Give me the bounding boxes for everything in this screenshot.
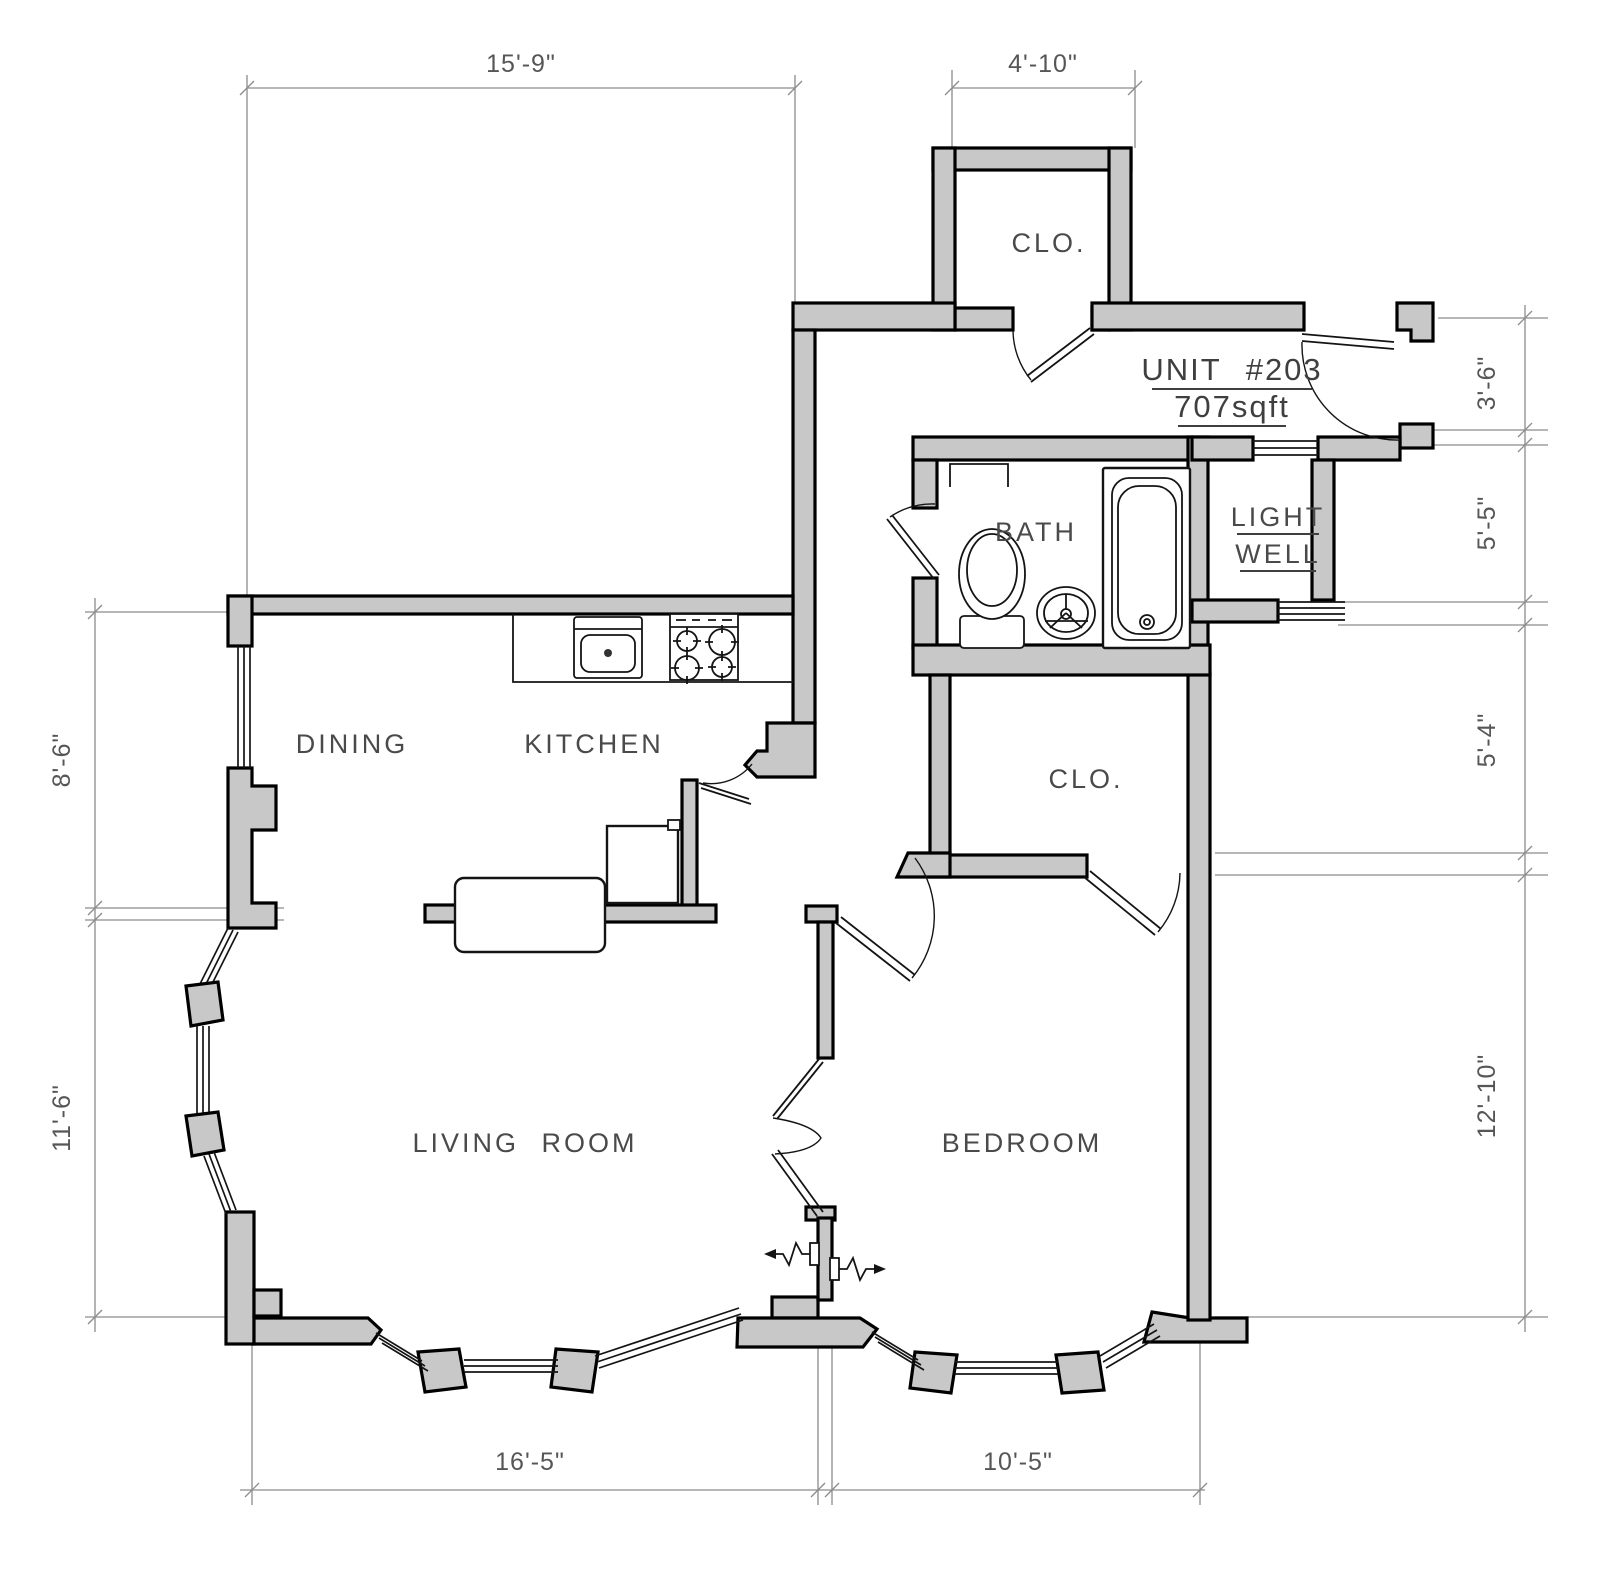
wall-bed-closet-south (930, 855, 1087, 877)
wall-north-left (793, 303, 955, 330)
dim-right-entry: 3'-6" (1473, 356, 1501, 411)
door-unit-entry (1302, 334, 1400, 440)
bay-pier-living-2 (551, 1349, 598, 1392)
wall-east (1188, 673, 1210, 1320)
label-light-well-2: WELL (1235, 539, 1321, 569)
label-living-room: LIVING ROOM (412, 1128, 637, 1158)
wall-hall-west-chunk (745, 723, 815, 777)
wall-northeast-corner (1397, 303, 1433, 341)
label-bedroom: BEDROOM (942, 1128, 1103, 1158)
dim-bottom-living: 16'-5" (495, 1448, 565, 1476)
wall-lightwell-north-a (1192, 437, 1253, 460)
wall-sw-corner-nub (254, 1290, 281, 1316)
bath-shelf (950, 464, 1008, 487)
dim-right-bedroom: 12'-10" (1473, 1054, 1501, 1139)
fixtures (455, 464, 1190, 952)
refrigerator (607, 820, 680, 903)
wall-south-center-step (772, 1297, 818, 1318)
label-kitchen: KITCHEN (524, 729, 664, 759)
dim-left-living: 11'-6" (48, 1084, 76, 1152)
door-bedroom-closet (1084, 871, 1180, 935)
window-lightwell-south (1278, 602, 1345, 620)
bay-pier-bedroom-2 (1056, 1352, 1104, 1393)
kitchen-stove (670, 614, 739, 684)
dim-right-closet: 5'-4" (1473, 713, 1501, 768)
wall-bed-closet-west (930, 675, 950, 855)
walls (226, 148, 1433, 1393)
wall-bath-north (913, 437, 1192, 460)
kitchen-sink (574, 617, 642, 678)
label-bedroom-closet: CLO. (1048, 764, 1123, 794)
bay-pier-bedroom-1 (910, 1352, 957, 1393)
door-entry-closet (1013, 328, 1094, 382)
window-bedroom-bay-center (955, 1362, 1058, 1374)
window-living-bay-center (464, 1360, 558, 1372)
bathtub (1103, 468, 1190, 648)
window-living-west-3 (204, 1152, 236, 1214)
wall-entry-closet-top (933, 148, 1131, 170)
wall-west-post-mid (228, 768, 276, 928)
wall-kitchen-north (228, 596, 793, 614)
bay-pier-living-1 (418, 1349, 466, 1392)
wall-south-center-band (737, 1318, 877, 1347)
label-unit-area: 707sqft (1174, 389, 1290, 424)
label-bath: BATH (995, 517, 1077, 547)
bath-sink (1037, 587, 1095, 639)
break-symbol-left (764, 1243, 819, 1265)
window-dining-west (238, 646, 250, 768)
opening-living-bedroom (772, 1059, 823, 1216)
wall-south-band-west (254, 1318, 381, 1344)
window-living-bay-right (595, 1308, 743, 1368)
window-lightwell-north (1253, 441, 1318, 455)
wall-divider-cap-top (806, 906, 837, 922)
wall-bath-south (913, 645, 1210, 675)
break-symbol-right (830, 1258, 886, 1280)
wall-hall-west (793, 330, 815, 723)
wall-lightwell-north-b (1318, 437, 1400, 460)
wall-west-post-top (228, 596, 252, 646)
window-living-west-2 (197, 1026, 209, 1116)
label-unit-number: UNIT #203 (1141, 352, 1322, 387)
wall-lightwell-south (1192, 600, 1278, 622)
bay-pier-west-1 (186, 982, 223, 1026)
kitchen-counter (513, 614, 793, 682)
wall-hall-bedroom-jamb (897, 853, 950, 877)
dim-right-bath: 5'-5" (1473, 496, 1501, 551)
wall-kitchen-east (682, 780, 697, 907)
dim-bottom-bedroom: 10'-5" (983, 1448, 1053, 1476)
wall-bath-west-lower (913, 578, 937, 648)
dim-entry-closet-width: 4'-10" (1008, 50, 1078, 78)
wall-sw-corner (226, 1212, 254, 1344)
bay-pier-west-2 (186, 1112, 224, 1156)
label-dining: DINING (296, 729, 409, 759)
label-light-well-1: LIGHT (1231, 502, 1326, 532)
wall-north-right (1092, 303, 1304, 330)
door-kitchen (699, 764, 752, 804)
dim-top-width: 15'-9" (486, 50, 556, 78)
wall-stub-dining-south (425, 905, 457, 922)
floor-plan-sheet: 15'-9" 4'-10" 3'-6" 5'-5" 5'-4" 12'-10" … (0, 0, 1600, 1575)
floor-plan-drawing: 15'-9" 4'-10" 3'-6" 5'-5" 5'-4" 12'-10" … (0, 0, 1600, 1575)
wall-divider-upper (818, 922, 833, 1058)
dim-left-dining: 8'-6" (48, 733, 76, 788)
label-entry-closet: CLO. (1011, 228, 1086, 258)
wall-stub-kitchen-south (597, 905, 716, 922)
wall-entry-closet-bottom-left (955, 308, 1013, 330)
dining-table (455, 878, 605, 952)
wall-bath-west-upper (913, 460, 937, 508)
door-bath (887, 504, 939, 579)
wall-entry-door-stop (1400, 424, 1433, 448)
